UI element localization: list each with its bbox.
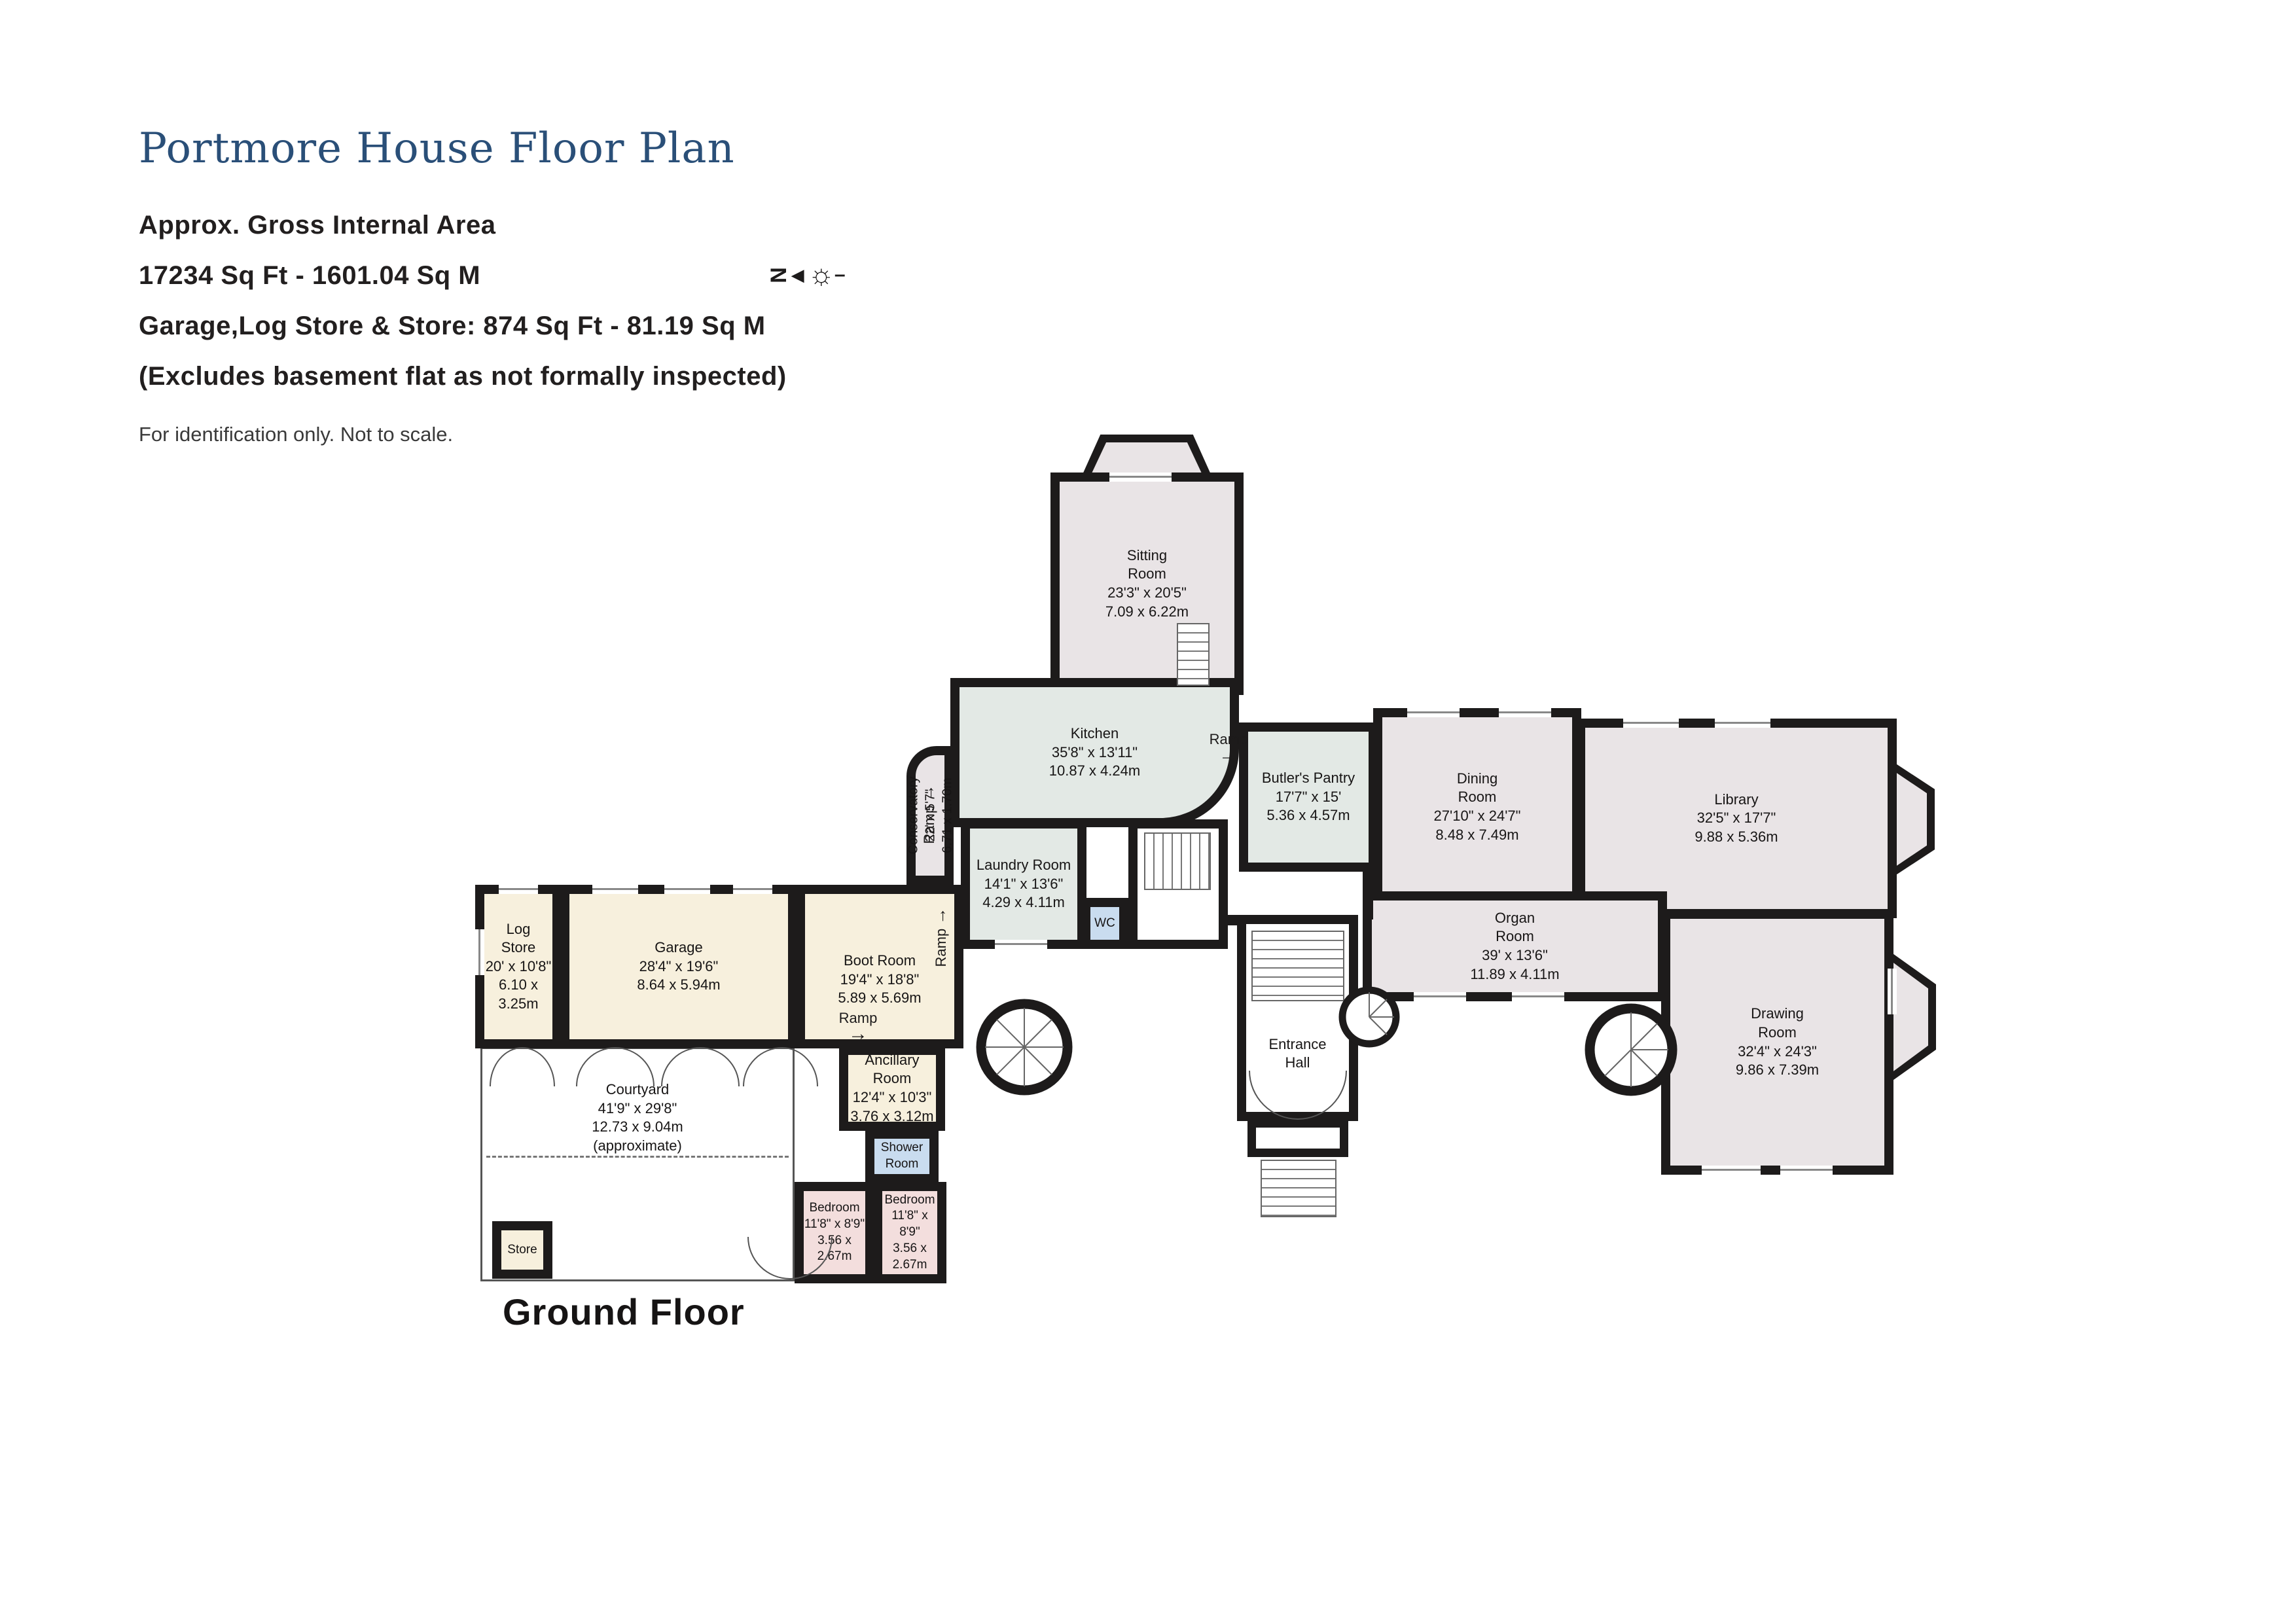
ramp-label-boot-vertical: Ramp →	[933, 891, 949, 983]
header: Portmore House Floor Plan Approx. Gross …	[139, 124, 787, 467]
window	[1702, 1166, 1761, 1175]
room-organ: Organ Room39' x 13'6"11.89 x 4.11m	[1363, 891, 1667, 1001]
window	[1499, 708, 1551, 717]
wall-segment	[1228, 915, 1241, 925]
room-ancillary: Ancillary Room12'4" x 10'3"3.76 x 3.12m	[839, 1046, 945, 1131]
room-log-store: Log Store20' x 10'8"6.10 x 3.25m	[475, 885, 562, 1048]
sitting-room-steps	[1177, 623, 1210, 686]
back-staircase	[1144, 832, 1211, 890]
window	[664, 885, 710, 894]
north-compass-icon: N ◀ ☼ –	[771, 260, 846, 289]
window	[1715, 719, 1770, 728]
compass-arrow-icon: ◀	[791, 265, 804, 285]
spiral-stair-hall	[1338, 986, 1401, 1048]
window	[1512, 992, 1564, 1001]
disclaimer-text: For identification only. Not to scale.	[139, 423, 787, 446]
window	[1407, 708, 1460, 717]
ramp-label-conservatory: Ramp →	[922, 768, 937, 860]
courtyard-dashed-boundary	[486, 1156, 789, 1158]
room-laundry: Laundry Room14'1" x 13'6"4.29 x 4.11m	[961, 819, 1086, 949]
room-library: Library32'5" x 17'7"9.88 x 5.36m	[1576, 719, 1897, 918]
window	[995, 940, 1047, 949]
wall-segment	[1363, 867, 1373, 919]
room-garage: Garage28'4" x 19'6"8.64 x 5.94m	[560, 885, 797, 1048]
window	[1414, 992, 1466, 1001]
compass-north-letter: N	[766, 267, 792, 283]
garage-door-arc	[782, 1047, 818, 1086]
window	[475, 929, 484, 975]
compass-sun-icon: ☼	[808, 260, 834, 289]
compass-dash: –	[834, 264, 846, 286]
floor-name-label: Ground Floor	[503, 1291, 745, 1333]
room-bedroom-right: Bedroom11'8" x 8'9"3.56 x 2.67m	[873, 1182, 946, 1283]
page-title: Portmore House Floor Plan	[139, 124, 787, 173]
window	[1780, 1166, 1833, 1175]
window	[1623, 719, 1679, 728]
exclusion-note: (Excludes basement flat as not formally …	[139, 362, 787, 391]
gross-area-heading: Approx. Gross Internal Area	[139, 211, 787, 240]
garage-area-value: Garage,Log Store & Store: 874 Sq Ft - 81…	[139, 312, 787, 341]
room-store: Store	[492, 1221, 552, 1279]
ramp-label-boot-horizontal: Ramp→	[816, 1010, 901, 1042]
entrance-porch	[1247, 1119, 1348, 1157]
room-wc: WC	[1081, 898, 1128, 949]
window	[733, 885, 772, 894]
main-staircase	[1251, 931, 1344, 1001]
spiral-stair-tower-west	[975, 998, 1073, 1096]
floor-plan-page: { "header": { "title": "Portmore House F…	[0, 0, 2296, 1623]
ramp-label-kitchen: Ramp→	[1193, 732, 1265, 763]
window	[499, 885, 538, 894]
room-shower: Shower Room	[865, 1130, 939, 1183]
gross-area-value: 17234 Sq Ft - 1601.04 Sq M	[139, 261, 787, 291]
room-dining: Dining Room27'10" x 24'7"8.48 x 7.49m	[1373, 708, 1581, 906]
room-drawing: Drawing Room32'4" x 24'3"9.86 x 7.39m	[1661, 910, 1893, 1175]
room-sitting: Sitting Room23'3" x 20'5"7.09 x 6.22m	[1050, 473, 1244, 695]
window	[1109, 473, 1172, 482]
spiral-stair-tower-east	[1584, 1003, 1679, 1097]
front-entrance-steps	[1261, 1160, 1336, 1217]
window	[1888, 969, 1897, 1014]
window	[592, 885, 638, 894]
